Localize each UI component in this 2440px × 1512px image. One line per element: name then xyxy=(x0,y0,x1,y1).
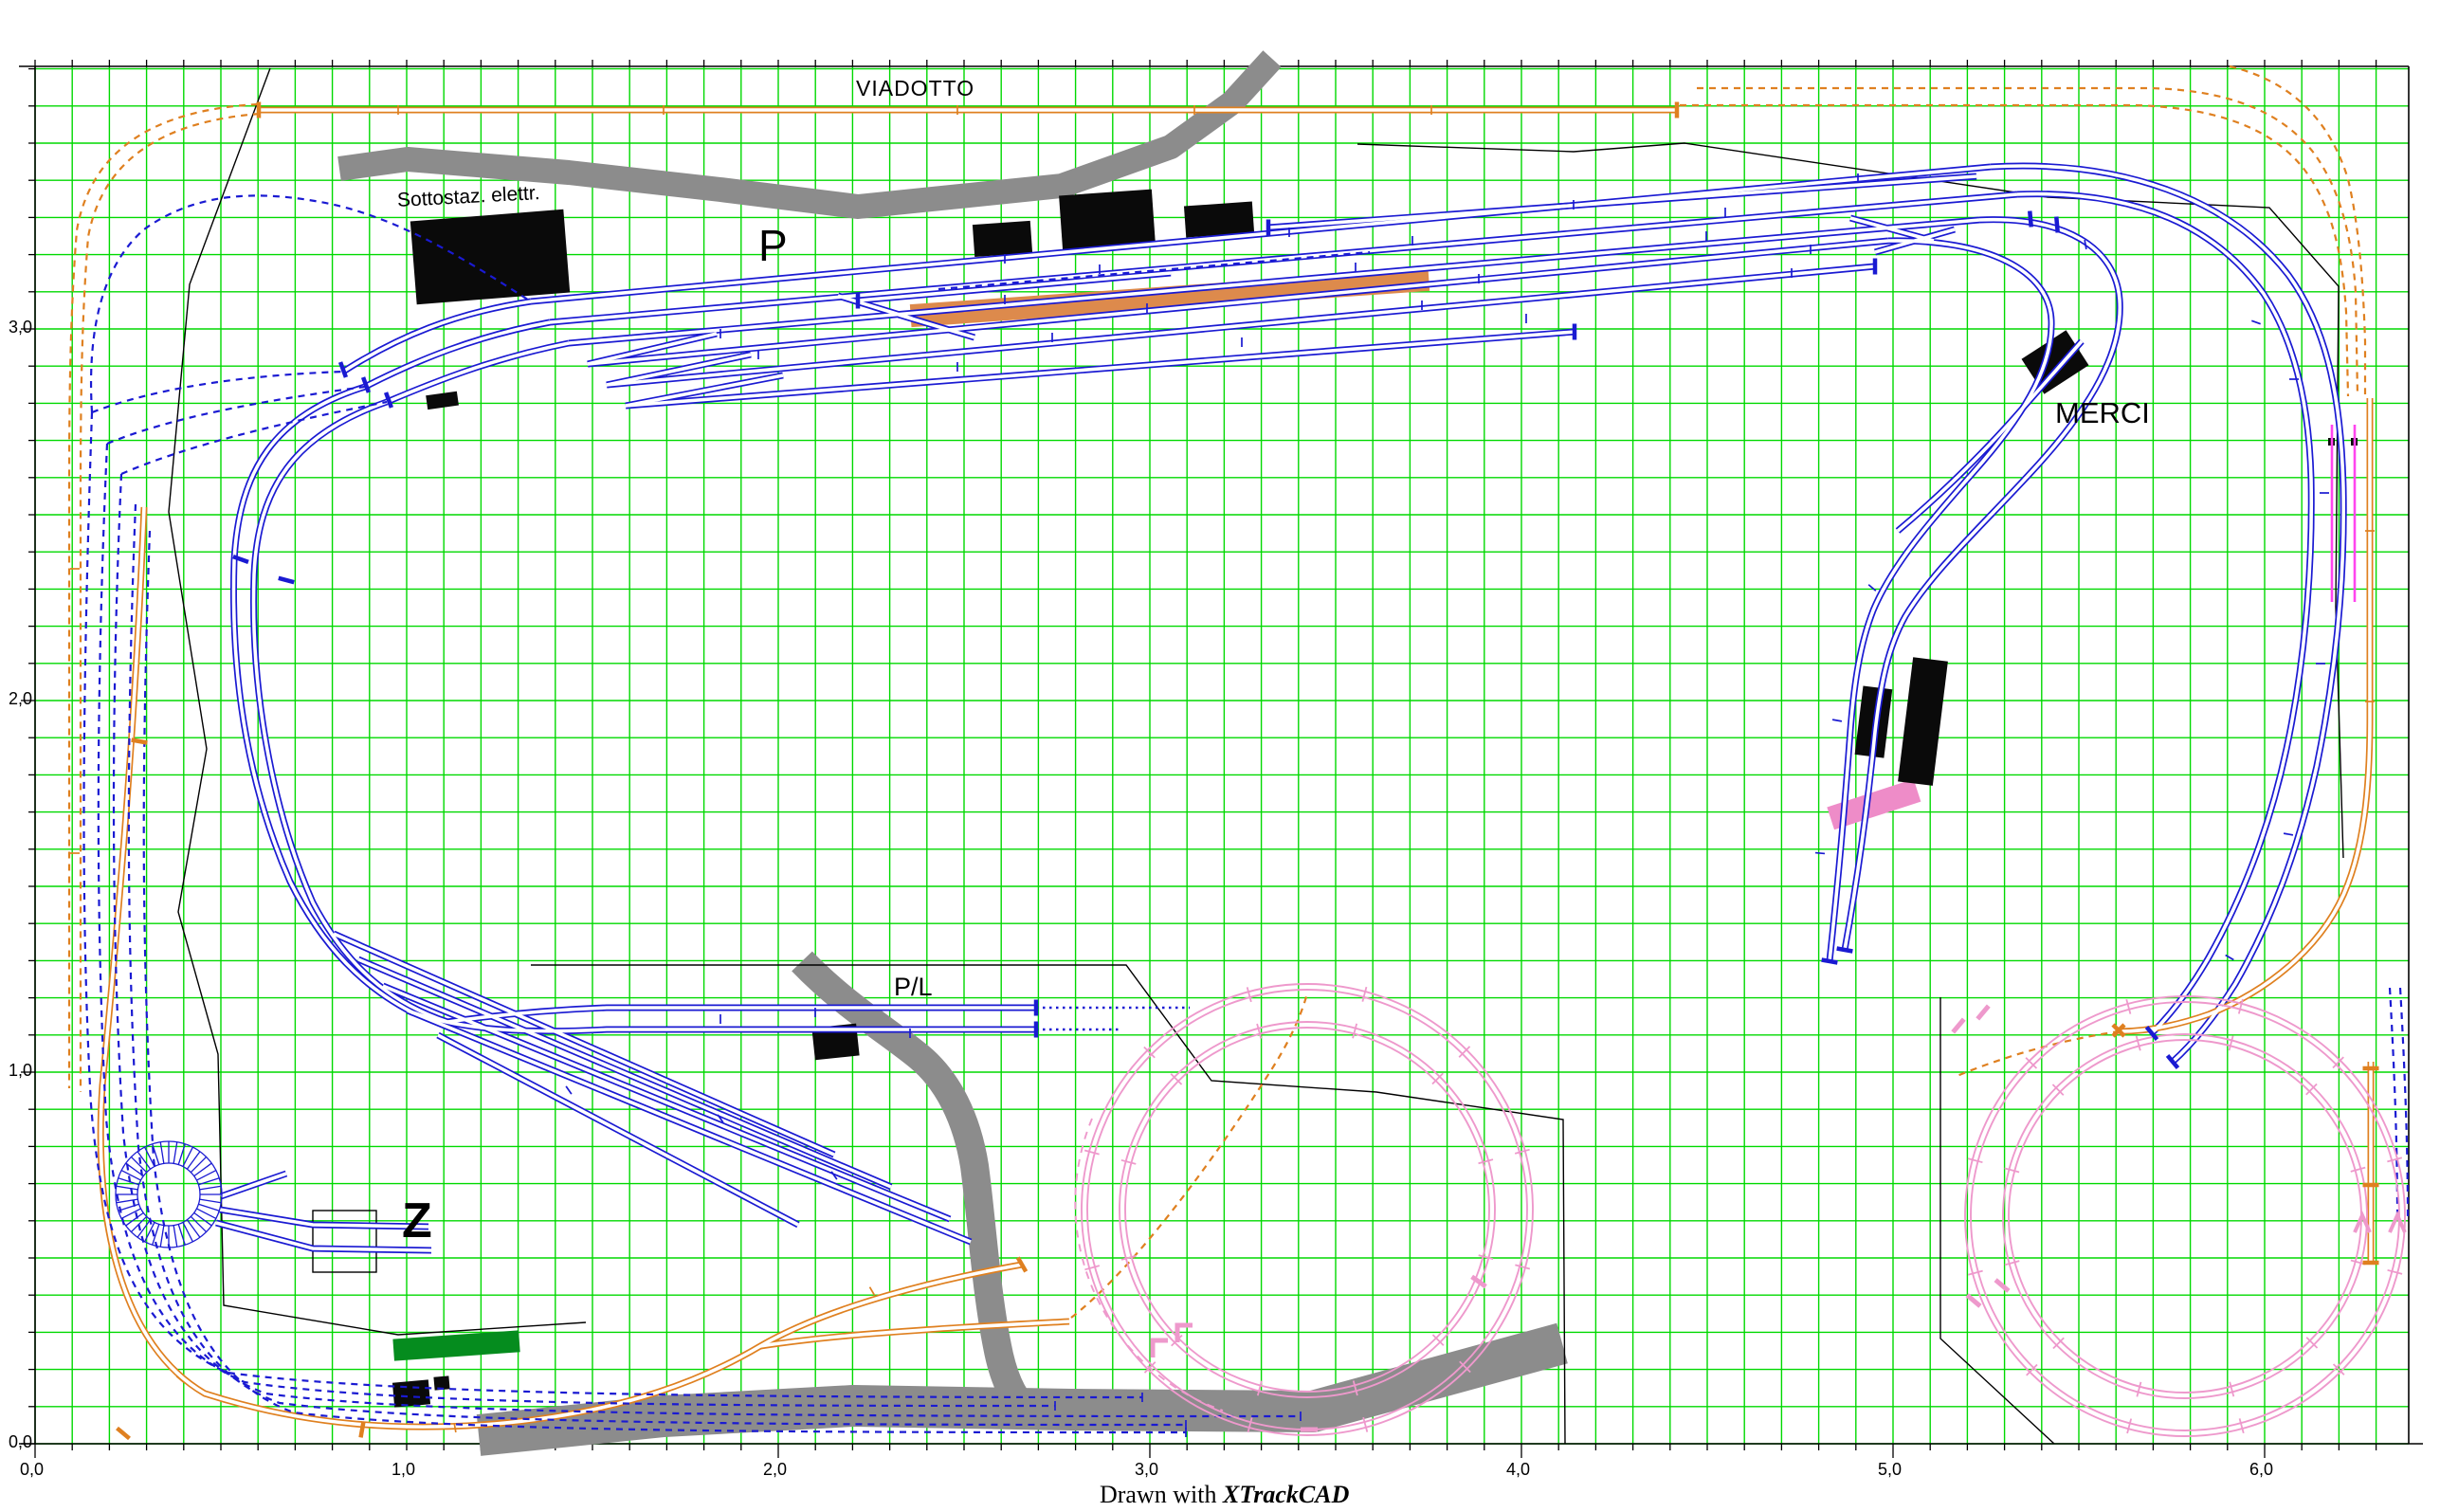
left-ruler-label: 3,0 xyxy=(0,318,32,337)
label-z[interactable]: Z xyxy=(402,1193,432,1249)
bottom-ruler-label: 0,0 xyxy=(20,1460,44,1480)
label-station-p[interactable]: P xyxy=(758,220,788,271)
building-merci-2[interactable] xyxy=(1898,657,1948,786)
label-merci[interactable]: MERCI xyxy=(2055,396,2150,430)
building-station-3[interactable] xyxy=(1184,202,1254,238)
credit-prefix: Drawn with xyxy=(1100,1481,1223,1508)
solid-tracks-core xyxy=(100,110,2371,1427)
grid xyxy=(35,66,2409,1444)
platforms[interactable] xyxy=(392,268,1921,1361)
trackplan-drawing xyxy=(0,0,2440,1512)
bottom-ruler-label: 3,0 xyxy=(1135,1460,1158,1480)
label-pl[interactable]: P/L xyxy=(894,973,933,1002)
building-substation[interactable] xyxy=(410,209,570,304)
left-ruler-label: 2,0 xyxy=(0,689,32,709)
bottom-ruler-label: 1,0 xyxy=(391,1460,415,1480)
bottom-ruler-label: 5,0 xyxy=(1878,1460,1902,1480)
building-station-1[interactable] xyxy=(973,221,1032,257)
ruler-border xyxy=(19,66,2423,1444)
platform-green-z[interactable] xyxy=(392,1330,519,1360)
left-ruler-label: 1,0 xyxy=(0,1061,32,1081)
turntable[interactable] xyxy=(116,1141,222,1248)
bottom-ruler-label: 2,0 xyxy=(763,1460,787,1480)
left-ruler-label: 0,0 xyxy=(0,1432,32,1452)
xtrackcad-layout-canvas: VIADOTTO Sottostaz. elettr. P MERCI P/L … xyxy=(0,0,2440,1512)
bottom-ruler-label: 6,0 xyxy=(2249,1460,2273,1480)
building-z-1[interactable] xyxy=(392,1379,430,1407)
solid-tracks[interactable] xyxy=(100,110,2371,1427)
building-small-throat[interactable] xyxy=(426,392,459,410)
road-bottom[interactable] xyxy=(479,1343,1562,1435)
credit-note: Drawn with XTrackCAD xyxy=(1100,1481,1349,1509)
turntable-shed-outline[interactable] xyxy=(313,1211,376,1272)
label-viadotto[interactable]: VIADOTTO xyxy=(856,76,974,101)
helix-joint-ticks xyxy=(1084,987,2402,1433)
credit-brand: XTrackCAD xyxy=(1223,1481,1349,1508)
pink-marks xyxy=(1153,1215,2405,1357)
bottom-ruler-label: 4,0 xyxy=(1506,1460,1530,1480)
